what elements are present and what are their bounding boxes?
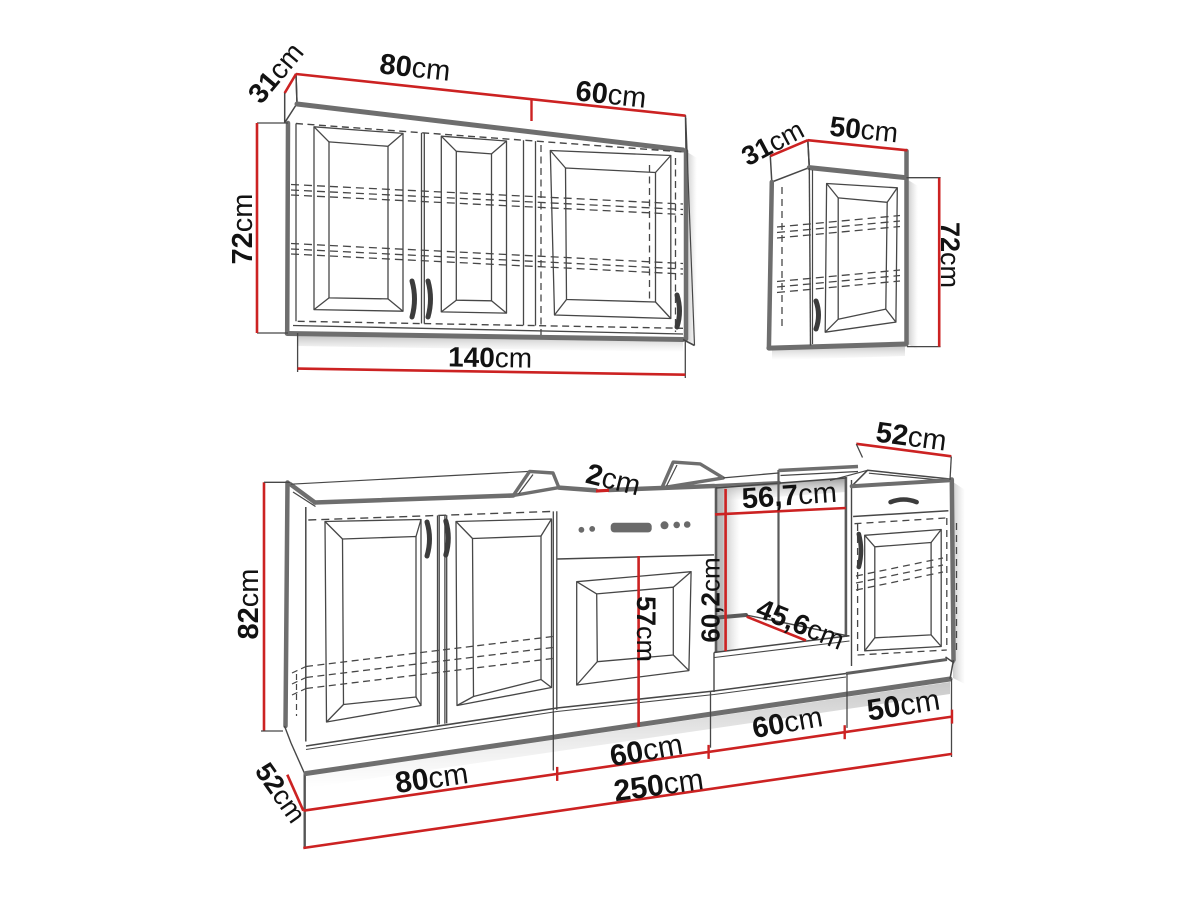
svg-text:82cm: 82cm: [233, 569, 265, 640]
svg-text:72cm: 72cm: [935, 222, 965, 288]
svg-text:56,7cm: 56,7cm: [741, 477, 838, 516]
svg-text:60,2cm: 60,2cm: [696, 557, 726, 642]
svg-text:140cm: 140cm: [448, 341, 533, 373]
svg-text:72cm: 72cm: [227, 194, 259, 265]
svg-text:57cm: 57cm: [631, 596, 661, 662]
